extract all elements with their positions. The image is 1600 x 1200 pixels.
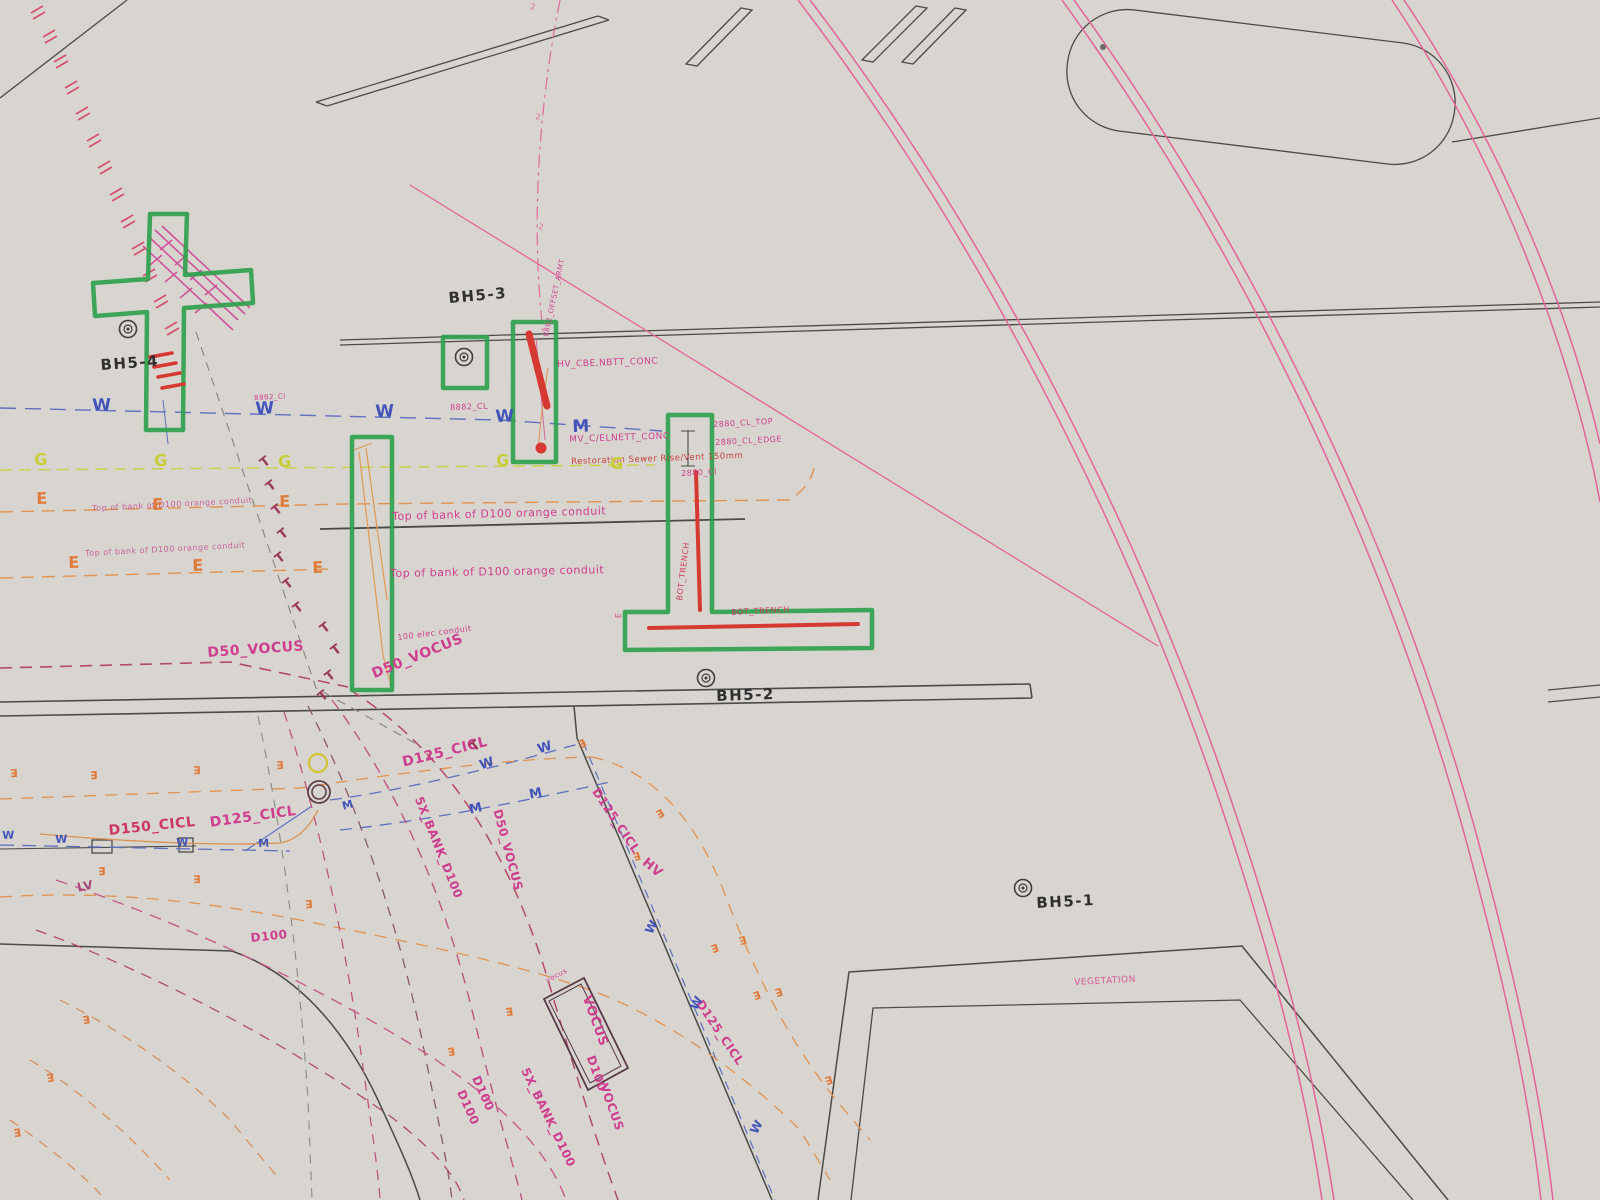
utility-services <box>0 338 870 1200</box>
surface-features <box>308 754 628 1090</box>
vegetation-area-outline <box>818 946 1448 1200</box>
borehole-symbol-BH5-3 <box>456 349 473 366</box>
gas-line <box>0 465 655 470</box>
water-line <box>0 408 662 431</box>
hatch-area <box>143 226 250 330</box>
borehole-symbol-BH5-4 <box>120 321 137 338</box>
trench-box-small <box>443 337 487 388</box>
level-symbol <box>681 430 695 466</box>
valve-circle-yellow <box>309 754 327 772</box>
plan-linework <box>0 0 1600 1200</box>
alignment-arcs <box>410 0 1600 1200</box>
telecom-dashed-line <box>196 332 420 746</box>
borehole-symbol-BH5-2 <box>698 670 715 687</box>
vocus-line <box>0 662 348 687</box>
red-marker-lines <box>150 334 858 628</box>
conduit-lines <box>354 443 391 686</box>
road-linework <box>0 0 1600 1200</box>
trench-tee <box>625 415 872 650</box>
boundary-tick-chain <box>31 6 179 335</box>
chainage-line <box>537 0 560 332</box>
photographed-plan: BH5-4 BH5-3 BH5-2 BH5-1 HV_CBE,NBTT_CONC… <box>0 0 1600 1200</box>
borehole-symbols <box>120 321 1032 897</box>
highlighted-trench-outlines <box>93 214 872 690</box>
borehole-symbol-BH5-1 <box>1015 880 1032 897</box>
electric-line <box>0 468 814 512</box>
